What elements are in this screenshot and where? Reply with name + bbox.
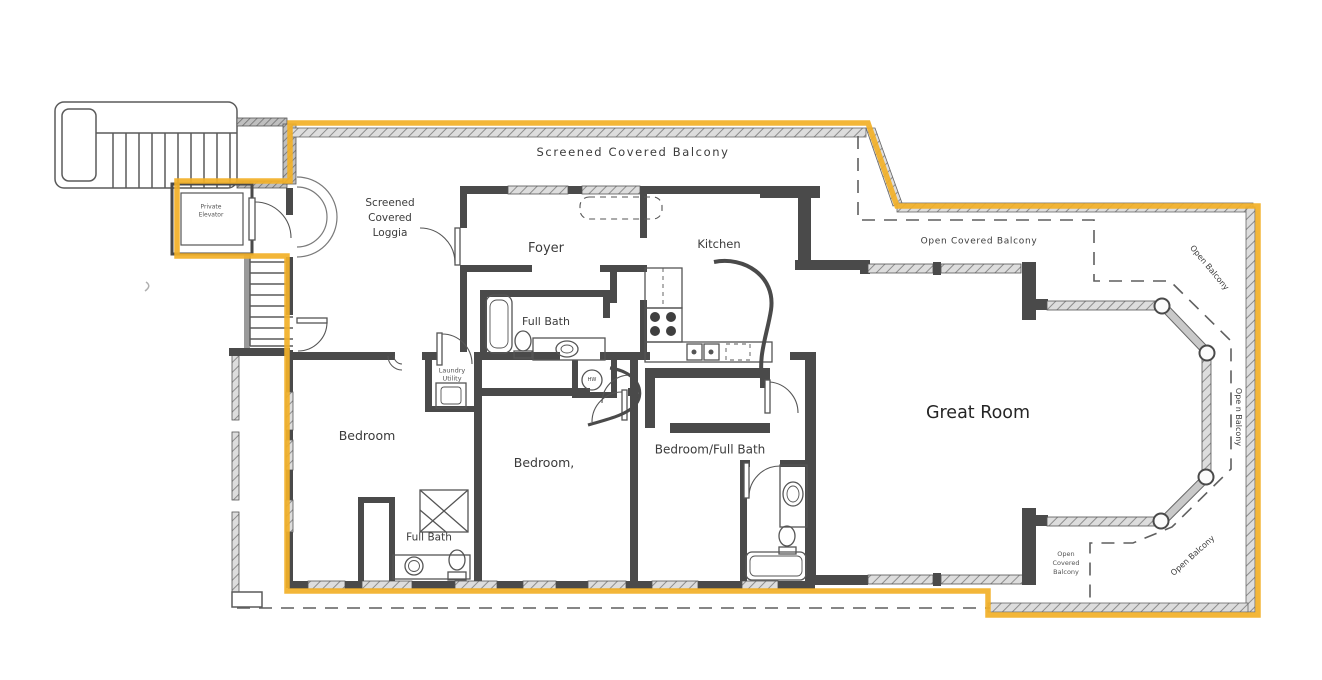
bay-windows [1047,299,1215,529]
screen-walls [292,128,1255,612]
floor-plan-drawing [0,0,1322,680]
fixtures [172,177,807,580]
floor-plan-page: Screened Covered Balcony Screened Covere… [0,0,1322,680]
walls [286,186,1048,589]
exterior-stairs [55,102,296,607]
